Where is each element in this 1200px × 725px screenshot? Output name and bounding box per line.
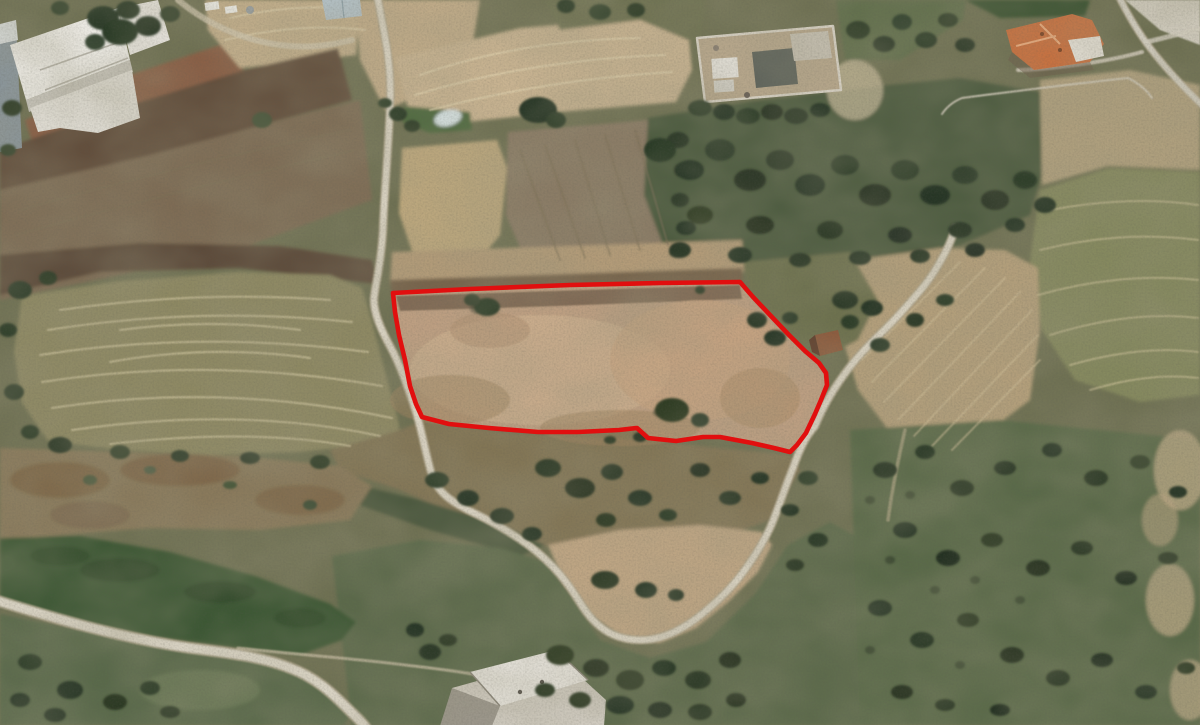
photo-grain-overlay [0, 0, 1200, 725]
satellite-image [0, 0, 1200, 725]
aerial-scene [0, 0, 1200, 725]
